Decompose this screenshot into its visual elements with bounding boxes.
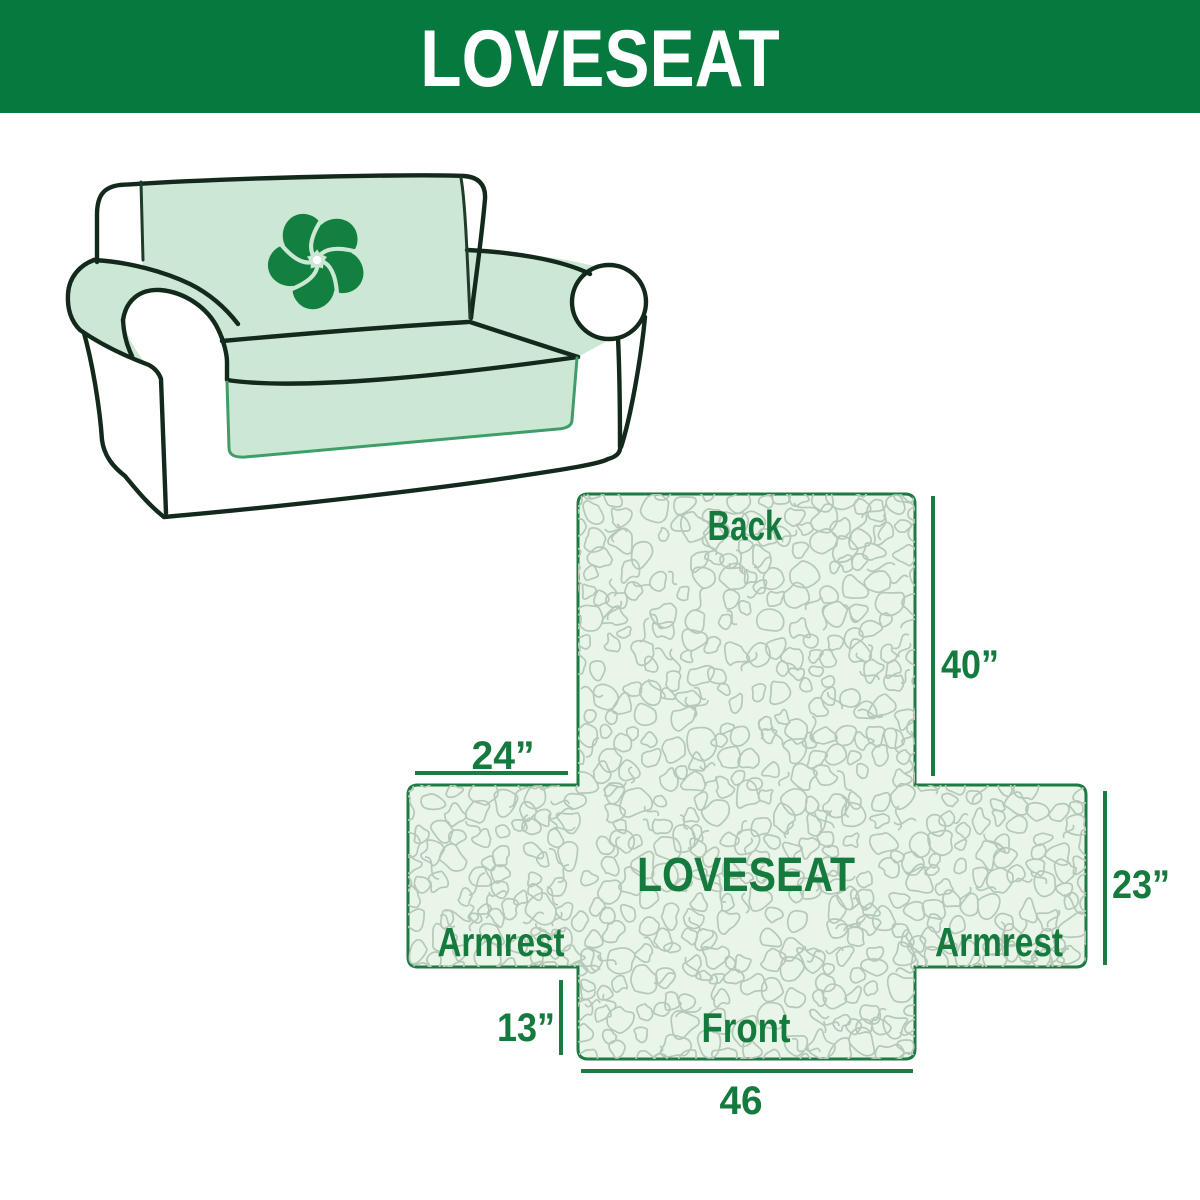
svg-text:Back: Back xyxy=(708,502,783,549)
svg-text:LOVESEAT: LOVESEAT xyxy=(420,12,779,103)
svg-text:Armrest: Armrest xyxy=(935,919,1063,965)
svg-text:Armrest: Armrest xyxy=(438,919,565,965)
svg-text:13”: 13” xyxy=(497,1006,555,1050)
svg-text:23”: 23” xyxy=(1112,863,1170,907)
svg-text:Front: Front xyxy=(702,1004,791,1051)
svg-text:46: 46 xyxy=(720,1079,763,1123)
svg-text:LOVESEAT: LOVESEAT xyxy=(637,849,855,902)
svg-text:40”: 40” xyxy=(941,643,999,687)
svg-text:24”: 24” xyxy=(472,734,535,778)
